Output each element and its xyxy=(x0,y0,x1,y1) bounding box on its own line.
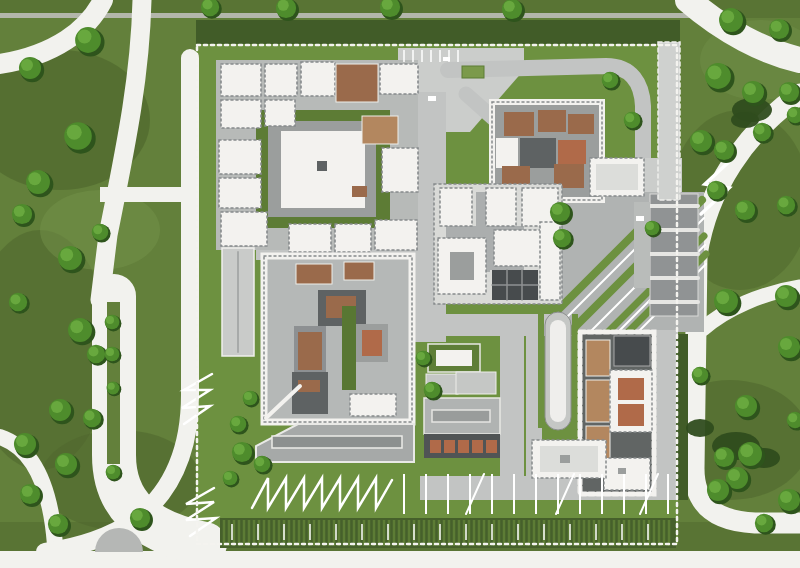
building-white xyxy=(219,140,261,174)
tree-highlight xyxy=(716,449,727,460)
building-brown-roof xyxy=(586,380,610,422)
tree-highlight xyxy=(728,469,740,481)
tree-highlight xyxy=(132,510,143,521)
tree-highlight xyxy=(771,21,782,32)
tree-highlight xyxy=(28,172,41,185)
stadium-strip-inner xyxy=(550,320,566,422)
tree-highlight xyxy=(709,183,719,193)
tree-highlight xyxy=(552,204,563,215)
tree-highlight xyxy=(709,481,721,493)
block-d-inner-court xyxy=(450,252,474,280)
building-terracotta xyxy=(618,378,644,400)
building-roof xyxy=(596,164,638,190)
parked-car xyxy=(428,96,436,101)
building-white xyxy=(219,178,261,208)
shrub-cluster xyxy=(686,419,714,437)
building-white xyxy=(496,138,518,168)
tree-highlight xyxy=(646,222,654,230)
block-b-east-brown xyxy=(362,330,382,356)
building-brown-roof xyxy=(568,114,594,134)
block-e-canopy xyxy=(634,202,650,288)
building-white xyxy=(440,188,472,226)
tree-highlight xyxy=(255,457,264,466)
building-brown-roof xyxy=(504,112,534,136)
tree-highlight xyxy=(22,486,33,497)
building-white xyxy=(382,148,418,192)
building-white xyxy=(221,212,267,246)
brown-row-unit xyxy=(486,440,497,453)
building-brown-roof xyxy=(344,262,374,280)
tree-highlight xyxy=(67,125,82,140)
brown-row-unit xyxy=(472,440,483,453)
block-f-court-white xyxy=(604,458,650,490)
tree-highlight xyxy=(779,198,789,208)
tree-highlight xyxy=(16,435,28,447)
tree-highlight xyxy=(744,83,756,95)
stadium-green-east xyxy=(572,314,578,428)
tree-highlight xyxy=(737,397,749,409)
tree-highlight xyxy=(755,125,765,135)
plaza-green-island xyxy=(462,66,484,78)
parked-car xyxy=(636,216,644,221)
building-white xyxy=(221,64,261,96)
building-brown-roof xyxy=(336,64,378,102)
bottom-road xyxy=(0,551,800,568)
hedge-band-top xyxy=(196,20,680,44)
tree-highlight xyxy=(106,348,114,356)
tree-highlight xyxy=(504,1,515,12)
block-a-core-hut xyxy=(352,186,367,197)
tree-highlight xyxy=(108,383,115,390)
shrub-cluster xyxy=(731,112,759,128)
building-white xyxy=(375,220,417,250)
building-terracotta xyxy=(558,140,586,164)
block-h-hall-stripe xyxy=(432,410,490,422)
tree-highlight xyxy=(781,84,792,95)
tree-highlight xyxy=(721,10,734,23)
tree-highlight xyxy=(757,516,767,526)
tree-highlight xyxy=(555,231,565,241)
building-white xyxy=(380,64,418,94)
block-b-green-strip xyxy=(342,306,356,390)
tree-highlight xyxy=(50,516,61,527)
tree-highlight xyxy=(737,202,748,213)
building-brown-roof xyxy=(296,264,332,284)
block-h-gray-roof xyxy=(456,372,496,394)
tree-highlight xyxy=(231,417,240,426)
block-b-west-brown xyxy=(298,332,322,370)
south-vertical-road-a xyxy=(500,336,524,482)
stadium-green-west xyxy=(538,314,544,428)
tree-highlight xyxy=(788,413,797,422)
block-a-core-vent xyxy=(317,161,327,171)
tree-highlight xyxy=(780,338,792,350)
tree-highlight xyxy=(244,392,252,400)
building-brown-roof xyxy=(586,340,610,376)
tree-highlight xyxy=(107,466,115,474)
brown-row-unit xyxy=(458,440,469,453)
building-white xyxy=(301,62,335,96)
tree-highlight xyxy=(780,491,792,503)
block-h-green-roof-core xyxy=(436,350,472,366)
block-b-court-white xyxy=(350,394,396,416)
tree-highlight xyxy=(234,444,245,455)
tree-highlight xyxy=(693,368,702,377)
tree-highlight xyxy=(106,316,114,324)
tree-highlight xyxy=(425,383,434,392)
tree-highlight xyxy=(708,66,722,80)
tree-highlight xyxy=(21,59,33,71)
building-tan-roof xyxy=(362,116,398,144)
tree-highlight xyxy=(740,444,753,457)
tree-highlight xyxy=(278,0,289,11)
tree-highlight xyxy=(78,30,92,44)
block-g-mark xyxy=(560,455,570,463)
tree-highlight xyxy=(603,73,612,82)
tree-highlight xyxy=(89,347,99,357)
building-terracotta xyxy=(618,404,644,426)
block-f-dark-roof xyxy=(614,336,650,366)
tree-highlight xyxy=(14,206,25,217)
block-c-center-dark xyxy=(520,138,556,168)
tree-highlight xyxy=(777,287,789,299)
tree-highlight xyxy=(85,411,95,421)
tree-highlight xyxy=(625,113,634,122)
tree-highlight xyxy=(692,132,704,144)
brown-row-unit xyxy=(444,440,455,453)
block-b-sw-dark xyxy=(292,372,328,414)
building-white xyxy=(289,224,331,252)
tree-highlight xyxy=(70,320,83,333)
building-white xyxy=(335,224,371,252)
building-white xyxy=(265,100,295,126)
building-white xyxy=(486,188,516,226)
tree-highlight xyxy=(60,248,73,261)
tree-highlight xyxy=(716,291,729,304)
tree-highlight xyxy=(93,225,102,234)
aerial-scene xyxy=(0,0,800,568)
tree-highlight xyxy=(716,142,727,153)
tree-highlight xyxy=(417,352,425,360)
tree-highlight xyxy=(57,455,69,467)
building-brown-roof xyxy=(538,110,566,132)
block-f-court-mark xyxy=(618,468,626,474)
screenshot-root xyxy=(0,0,800,568)
tree-highlight xyxy=(788,108,797,117)
building-white xyxy=(265,64,297,96)
tree-highlight xyxy=(224,472,232,480)
brown-row-unit xyxy=(430,440,441,453)
building-white xyxy=(221,100,261,128)
south-long-building-stripe xyxy=(272,436,402,448)
tree-highlight xyxy=(11,295,21,305)
tree-highlight xyxy=(51,401,63,413)
